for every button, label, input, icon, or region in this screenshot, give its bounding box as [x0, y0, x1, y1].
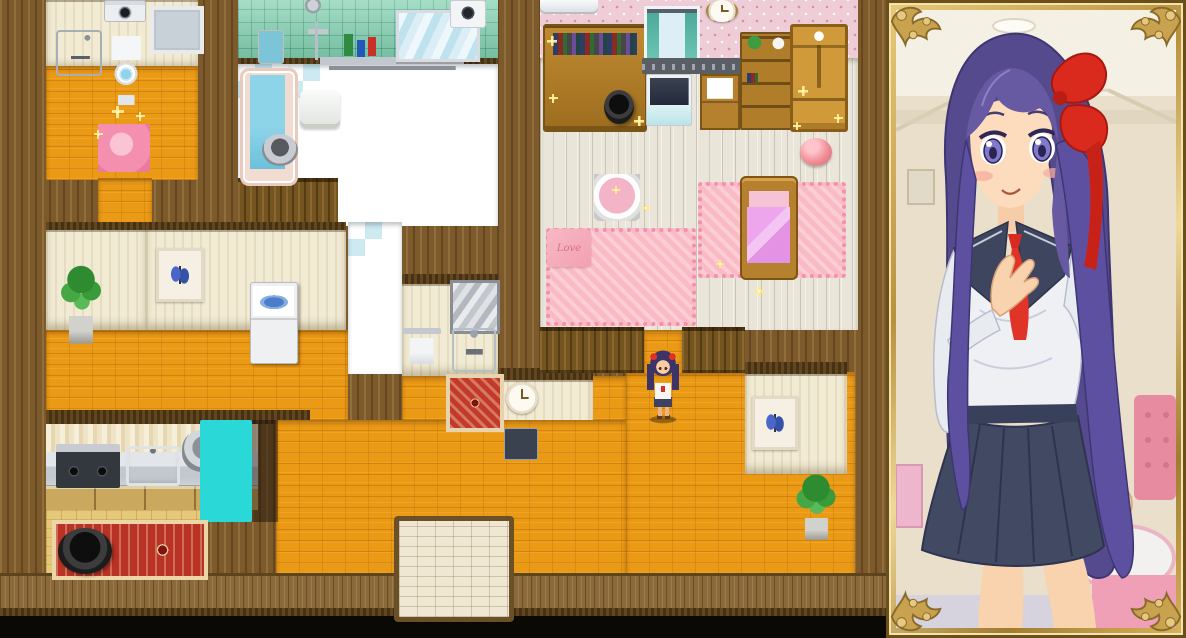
- wall-rail-shelf: [642, 58, 744, 74]
- bedroom-south-wall-west: [540, 327, 644, 373]
- sparkle-2: [136, 112, 145, 121]
- air-conditioner: [540, 0, 598, 14]
- game-map[interactable]: Love: [0, 0, 890, 638]
- character-figure: [922, 34, 1133, 628]
- bath-corridor: [348, 222, 402, 374]
- love-pillow[interactable]: Love: [547, 229, 591, 267]
- sparkle-12: [612, 186, 620, 194]
- bedroom-wall-clock: [706, 0, 738, 22]
- washing-machine-top-load[interactable]: [250, 282, 298, 364]
- frame-ornament-icon: [1126, 578, 1184, 636]
- stove[interactable]: [56, 444, 120, 488]
- sparkle-4: [547, 36, 557, 46]
- leg-left: [978, 562, 1024, 628]
- sparkle-11: [716, 260, 724, 268]
- bath-bucket[interactable]: [262, 134, 298, 166]
- portrait-frame: [886, 0, 1186, 638]
- bathtub[interactable]: [240, 68, 298, 186]
- sparkle-7: [798, 86, 808, 96]
- bedroom-window: [644, 6, 700, 62]
- sparkle-9: [793, 122, 801, 130]
- sparkle-3: [94, 130, 103, 139]
- sparkle-13: [642, 204, 650, 212]
- toilet-sink[interactable]: [56, 30, 102, 76]
- papers-cabinet[interactable]: [700, 74, 740, 130]
- wall-phone[interactable]: [504, 428, 538, 460]
- bath-stool[interactable]: [300, 90, 340, 128]
- butterfly-picture-se: [752, 396, 798, 450]
- pink-ball[interactable]: [800, 138, 832, 166]
- se-niche-cap: [745, 362, 847, 374]
- bedroom-south-wall-east: [682, 327, 745, 373]
- tv-stand[interactable]: [646, 74, 692, 126]
- toilet-rug: [98, 124, 150, 172]
- washroom-sink[interactable]: [452, 328, 496, 372]
- sparkle-8: [834, 114, 843, 123]
- towel-rack[interactable]: [403, 328, 441, 364]
- butterfly-picture-hall: [156, 248, 204, 302]
- toilet[interactable]: [108, 34, 144, 106]
- frame-ornament-icon: [1126, 2, 1184, 60]
- washroom-rug: [446, 374, 504, 432]
- bed[interactable]: [740, 176, 798, 280]
- fridge-shadow: [252, 420, 278, 522]
- toilet-window: [150, 6, 204, 54]
- bath-control-panel[interactable]: [258, 30, 284, 64]
- trash-bin[interactable]: [604, 90, 634, 124]
- potted-plant-hall[interactable]: [58, 252, 104, 344]
- potted-plant-se[interactable]: [794, 466, 838, 540]
- kitchen-sink[interactable]: [126, 446, 180, 486]
- game-screen: Love: [0, 0, 1186, 638]
- sparkle-10: [754, 286, 764, 296]
- refrigerator[interactable]: [200, 420, 252, 522]
- sparkle-6: [634, 116, 644, 126]
- frame-ornament-icon: [888, 2, 946, 60]
- portrait-art: [896, 10, 1176, 628]
- player-character[interactable]: [645, 350, 681, 424]
- frame-ornament-icon: [888, 578, 946, 636]
- washroom-mirror: [450, 280, 500, 334]
- sparkle-5: [549, 94, 558, 103]
- sparkle-1: [112, 106, 124, 118]
- character-portrait: [896, 10, 1176, 628]
- washing-machine-small[interactable]: [104, 0, 146, 22]
- ventilation-fan: [450, 0, 486, 28]
- entry-mat: [394, 516, 514, 622]
- kitchen-pot-black[interactable]: [58, 528, 112, 574]
- vanity-table[interactable]: [594, 174, 640, 221]
- hall-clock: [506, 382, 538, 414]
- bookshelf[interactable]: [740, 32, 796, 130]
